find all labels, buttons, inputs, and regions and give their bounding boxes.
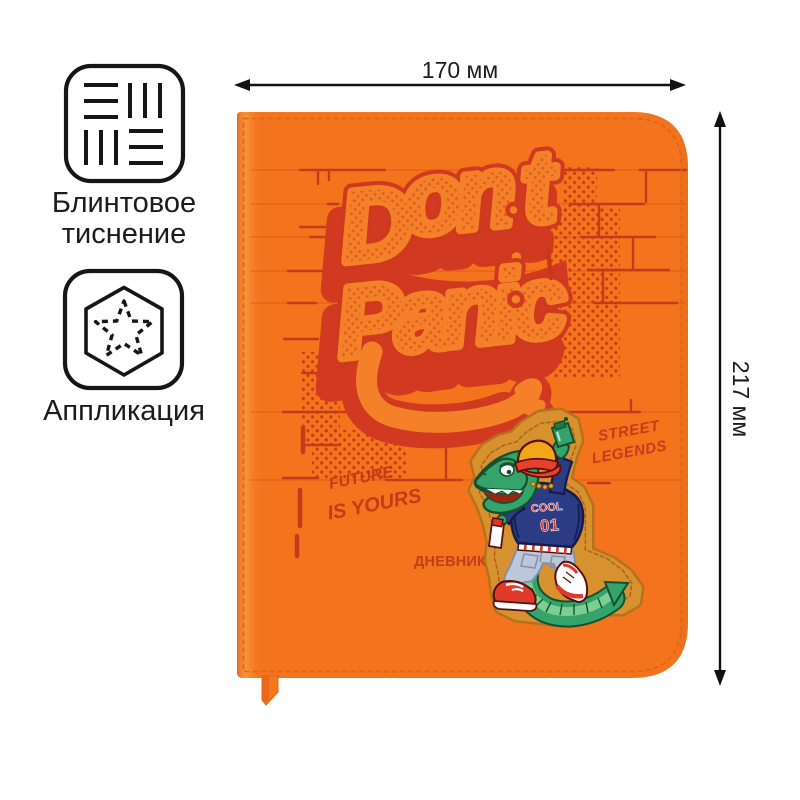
svg-text:170 мм: 170 мм <box>422 57 498 83</box>
svg-text:Аппликация: Аппликация <box>43 395 205 427</box>
svg-text:тиснение: тиснение <box>62 218 186 250</box>
svg-text:COOL: COOL <box>531 501 564 515</box>
svg-text:ДНЕВНИК: ДНЕВНИК <box>414 554 486 570</box>
svg-text:Блинтовое: Блинтовое <box>52 187 196 219</box>
svg-text:01: 01 <box>540 515 560 535</box>
svg-text:217 мм: 217 мм <box>728 361 754 437</box>
